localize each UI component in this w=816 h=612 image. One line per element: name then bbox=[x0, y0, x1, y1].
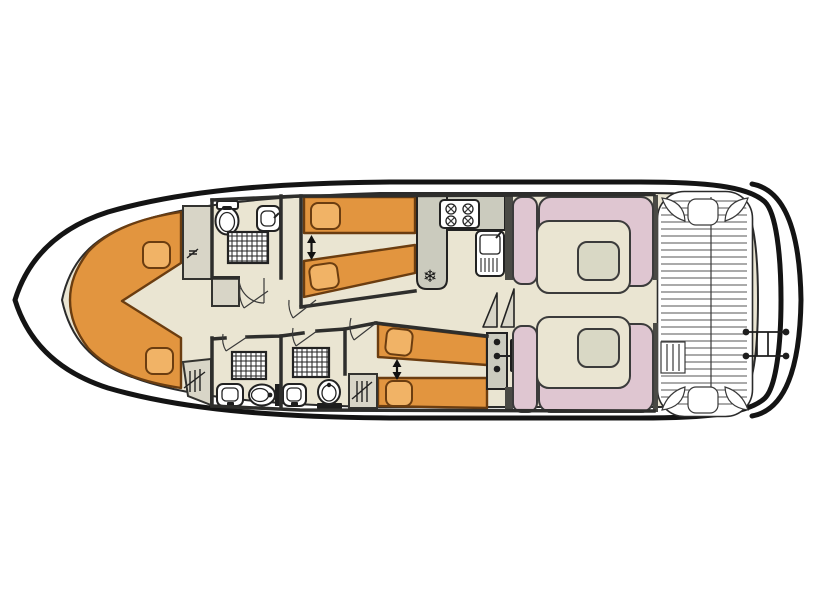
pillow bbox=[146, 348, 173, 374]
pillow bbox=[385, 328, 414, 357]
saloon-table-top bbox=[578, 242, 619, 280]
toilet-icon bbox=[216, 201, 239, 235]
burner-icon bbox=[446, 216, 456, 226]
deck-steps bbox=[661, 342, 685, 373]
shower-icon bbox=[232, 352, 266, 379]
wardrobe-aft bbox=[349, 374, 377, 408]
shower-icon bbox=[228, 232, 268, 263]
helm-control-knob bbox=[494, 366, 501, 373]
washbasin-icon bbox=[217, 384, 243, 407]
galley-saloon-wall-top bbox=[505, 195, 513, 280]
cabinet-corridor bbox=[212, 277, 239, 306]
deck-locker-top bbox=[688, 199, 718, 225]
shower-icon bbox=[293, 348, 329, 377]
burner-icon bbox=[463, 204, 473, 214]
fridge-icon: ❄ bbox=[423, 267, 437, 287]
toilet-icon bbox=[249, 384, 281, 406]
galley-saloon-wall-bottom bbox=[505, 387, 513, 412]
washbasin-icon bbox=[283, 384, 306, 407]
saloon-table-bottom bbox=[578, 329, 619, 367]
stove bbox=[440, 200, 479, 228]
floorplan-svg: ❄ bbox=[0, 0, 816, 612]
saloon-bench-left-bottom bbox=[513, 326, 537, 412]
pillow bbox=[386, 381, 412, 406]
houseboat-deck-plan: ❄ bbox=[0, 0, 816, 612]
helm-control-knob bbox=[494, 339, 501, 346]
wardrobe-forward bbox=[183, 206, 212, 279]
helm-control-knob bbox=[494, 353, 501, 360]
galley-sink bbox=[476, 231, 504, 276]
burner-icon bbox=[463, 216, 473, 226]
pillow bbox=[308, 262, 339, 291]
pillow bbox=[311, 203, 340, 229]
deck-locker-bottom bbox=[688, 387, 718, 413]
burner-icon bbox=[446, 204, 456, 214]
washbasin-icon bbox=[257, 206, 280, 231]
pillow bbox=[143, 242, 170, 268]
saloon-bench-left-top bbox=[513, 197, 537, 284]
toilet-icon bbox=[317, 380, 342, 409]
stern-deck bbox=[658, 192, 753, 417]
